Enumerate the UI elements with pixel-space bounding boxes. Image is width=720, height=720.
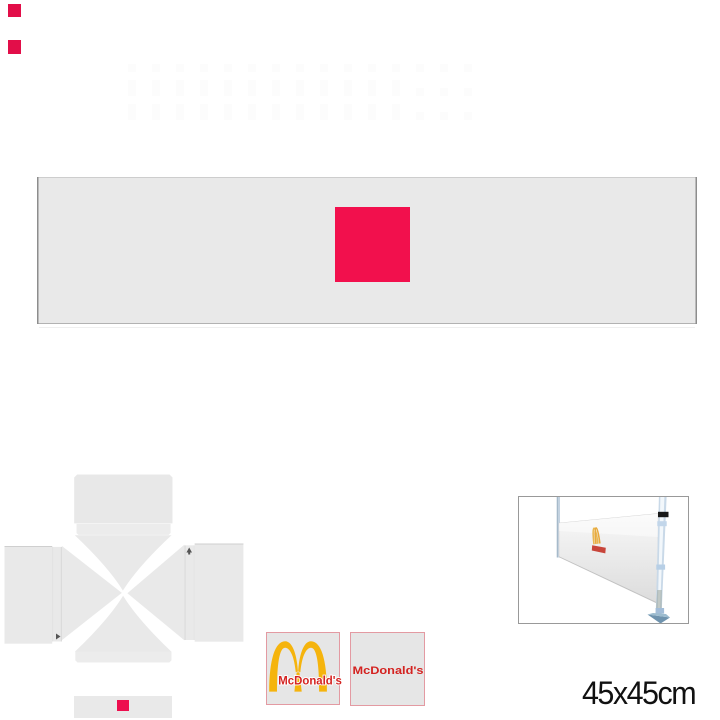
svg-text:McDonald's: McDonald's (278, 674, 342, 688)
svg-text:McDonald's: McDonald's (353, 665, 424, 677)
